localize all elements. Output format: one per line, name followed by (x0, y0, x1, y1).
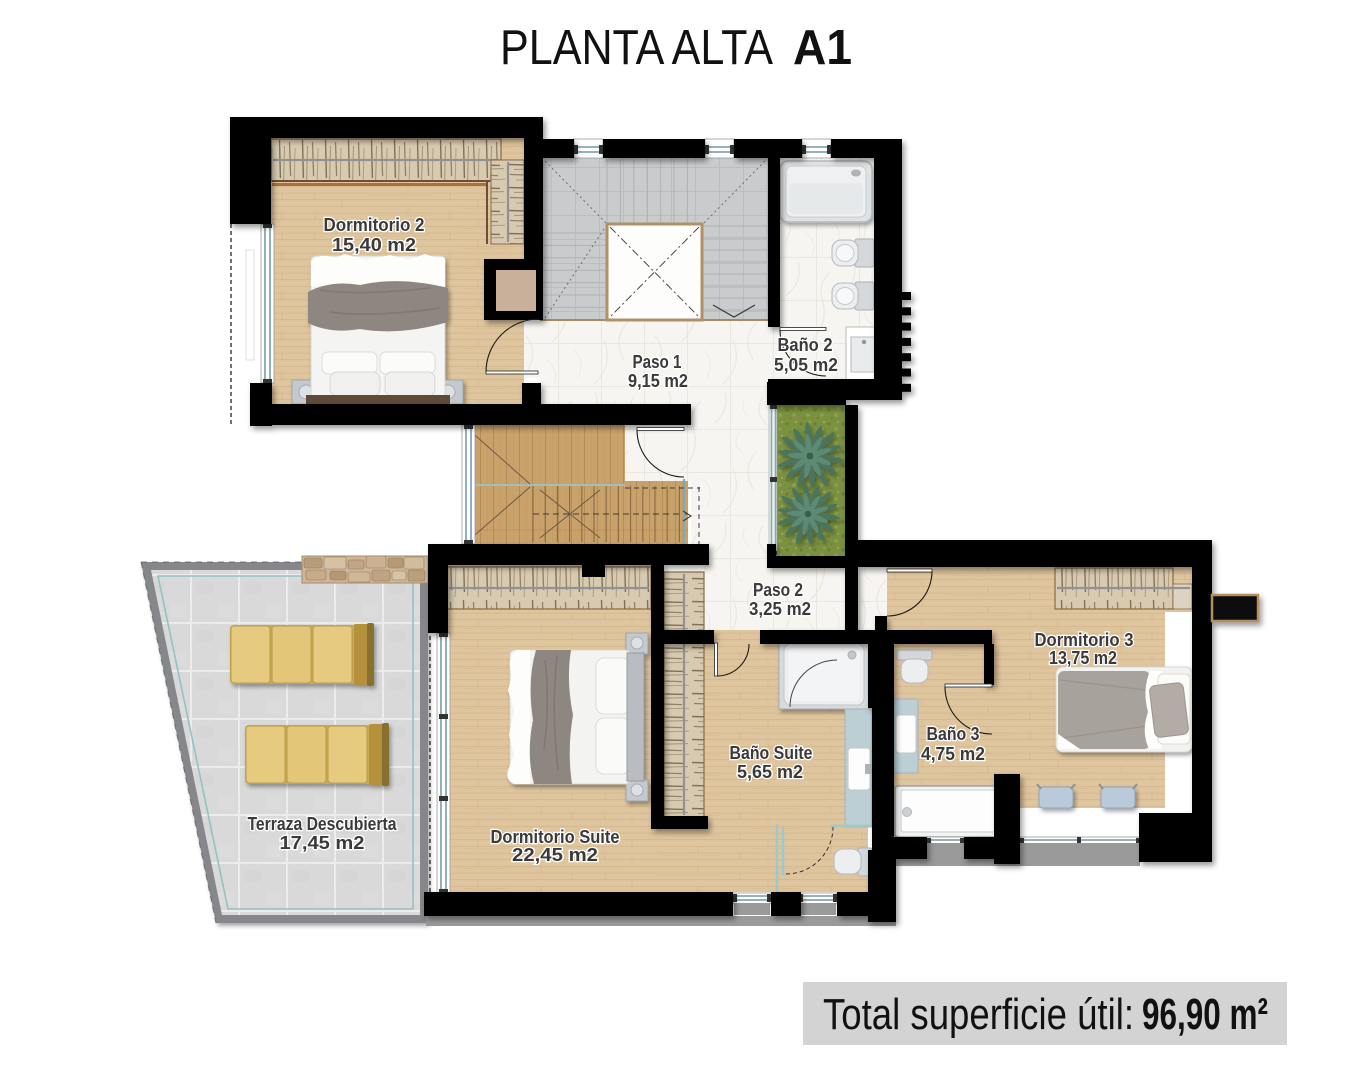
svg-text:A1: A1 (793, 21, 852, 75)
svg-text:Paso 2: Paso 2 (753, 580, 803, 600)
svg-text:Dormitorio Suite: Dormitorio Suite (491, 827, 620, 847)
svg-text:PLANTA ALTA: PLANTA ALTA (500, 21, 773, 75)
svg-text:5,05 m2: 5,05 m2 (774, 355, 838, 375)
svg-text:Baño 2: Baño 2 (778, 335, 833, 355)
svg-text:3,25 m2: 3,25 m2 (749, 599, 811, 619)
svg-text:17,45 m2: 17,45 m2 (280, 833, 365, 853)
svg-text:4,75 m2: 4,75 m2 (921, 744, 985, 764)
svg-text:Dormitorio 3: Dormitorio 3 (1035, 630, 1134, 650)
svg-text:Terraza Descubierta: Terraza Descubierta (248, 814, 398, 834)
svg-text:13,75 m2: 13,75 m2 (1049, 648, 1117, 668)
svg-text:Baño Suite: Baño Suite (730, 743, 813, 763)
svg-text:Dormitorio 2: Dormitorio 2 (324, 215, 425, 235)
svg-text:22,45 m2: 22,45 m2 (512, 845, 598, 865)
svg-text:Total superficie útil:: Total superficie útil: (823, 990, 1134, 1039)
svg-text:15,40 m2: 15,40 m2 (332, 235, 416, 255)
svg-text:9,15 m2: 9,15 m2 (628, 371, 688, 391)
svg-text:5,65 m2: 5,65 m2 (737, 762, 803, 782)
svg-text:96,90 m²: 96,90 m² (1142, 990, 1268, 1039)
svg-text:Baño 3: Baño 3 (927, 724, 980, 744)
svg-text:Paso 1: Paso 1 (633, 352, 682, 372)
